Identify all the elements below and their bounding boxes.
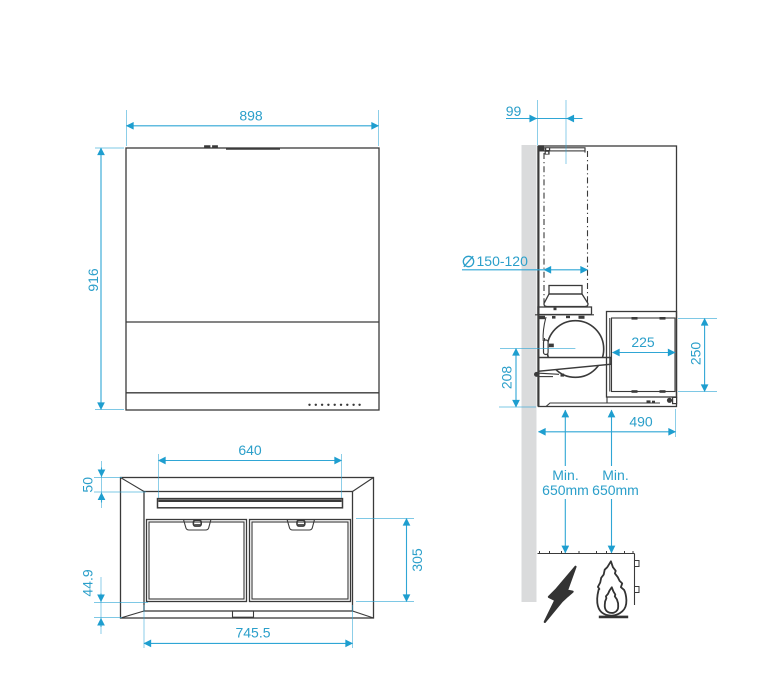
svg-text:44.9: 44.9	[80, 569, 96, 596]
svg-text:640: 640	[238, 442, 262, 458]
svg-text:99: 99	[506, 103, 522, 119]
svg-text:50: 50	[80, 477, 96, 493]
svg-text:Min.: Min.	[602, 467, 628, 483]
svg-text:916: 916	[85, 268, 101, 292]
svg-text:Min.: Min.	[552, 467, 578, 483]
svg-text:745.5: 745.5	[235, 625, 270, 641]
svg-text:208: 208	[499, 366, 515, 390]
svg-text:150-120: 150-120	[477, 253, 529, 269]
svg-text:225: 225	[631, 334, 655, 350]
svg-text:305: 305	[409, 548, 425, 572]
svg-text:250: 250	[688, 342, 704, 366]
svg-text:898: 898	[239, 108, 263, 124]
svg-text:490: 490	[629, 414, 653, 430]
svg-text:650mm: 650mm	[592, 482, 639, 498]
svg-text:650mm: 650mm	[542, 482, 589, 498]
